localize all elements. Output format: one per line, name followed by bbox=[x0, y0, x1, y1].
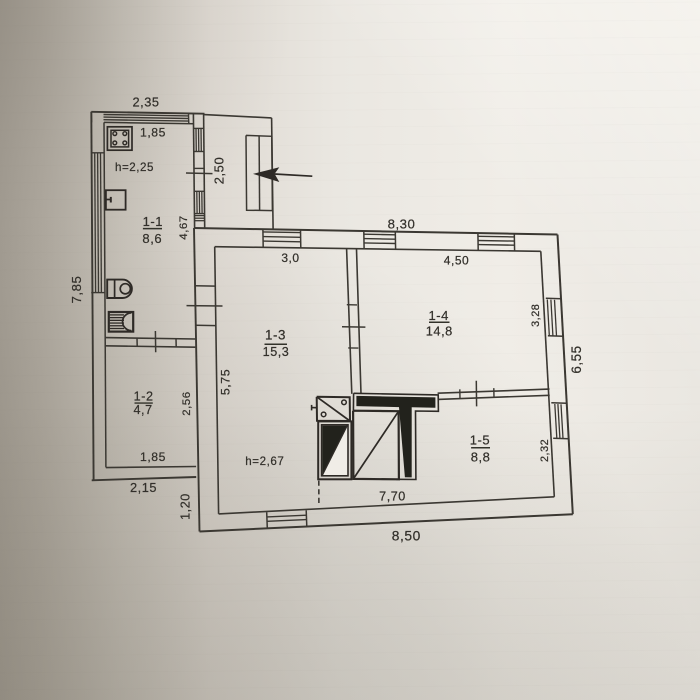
svg-text:8,50: 8,50 bbox=[392, 529, 421, 544]
svg-text:3,0: 3,0 bbox=[281, 251, 299, 265]
svg-text:2,32: 2,32 bbox=[539, 439, 551, 462]
svg-text:2,15: 2,15 bbox=[130, 480, 157, 495]
svg-text:5,75: 5,75 bbox=[219, 369, 233, 395]
svg-text:7,70: 7,70 bbox=[379, 489, 406, 503]
svg-text:1,85: 1,85 bbox=[140, 126, 166, 140]
svg-text:4,67: 4,67 bbox=[178, 215, 190, 239]
svg-text:2,35: 2,35 bbox=[132, 95, 159, 110]
svg-text:3,28: 3,28 bbox=[530, 304, 542, 327]
svg-text:2,56: 2,56 bbox=[181, 391, 193, 415]
svg-text:15,3: 15,3 bbox=[263, 345, 290, 359]
svg-text:1-2: 1-2 bbox=[134, 389, 154, 403]
svg-text:1,85: 1,85 bbox=[140, 450, 166, 464]
svg-text:1-4: 1-4 bbox=[428, 308, 448, 323]
svg-text:8,8: 8,8 bbox=[471, 449, 491, 464]
svg-text:4,7: 4,7 bbox=[134, 403, 153, 417]
svg-text:14,8: 14,8 bbox=[426, 323, 453, 338]
svg-text:1-1: 1-1 bbox=[143, 214, 163, 229]
svg-text:2,50: 2,50 bbox=[212, 157, 227, 185]
svg-text:6,55: 6,55 bbox=[569, 345, 584, 373]
svg-text:1,20: 1,20 bbox=[179, 493, 193, 520]
svg-text:h=2,67: h=2,67 bbox=[245, 455, 284, 468]
svg-text:8,30: 8,30 bbox=[388, 217, 416, 232]
svg-text:8,6: 8,6 bbox=[142, 231, 162, 246]
svg-text:7,85: 7,85 bbox=[69, 276, 84, 304]
svg-text:1-5: 1-5 bbox=[470, 433, 490, 448]
svg-text:h=2,25: h=2,25 bbox=[115, 161, 154, 174]
svg-text:4,50: 4,50 bbox=[444, 254, 470, 268]
svg-text:1-3: 1-3 bbox=[265, 327, 286, 342]
